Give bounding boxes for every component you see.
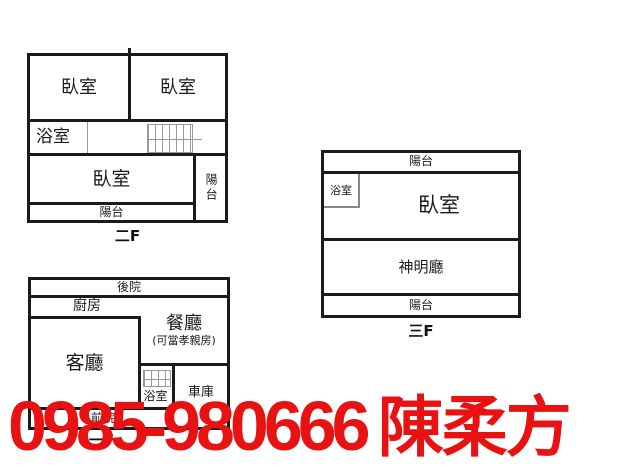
room-kitchen: 廚房 (55, 297, 119, 316)
floor2-plan: 臥室 臥室 浴室 臥室 陽台 陽台 (27, 53, 228, 223)
stairs-midline (143, 379, 171, 380)
agent-name: 陳柔方 (378, 390, 570, 464)
room-backyard: 後院 (31, 280, 227, 295)
dining-room-note: (可當孝親房) (152, 335, 216, 347)
room-shrine-hall: 神明廳 (324, 241, 518, 293)
room-balcony: 陽台 (324, 153, 518, 171)
floor2-label: 二F (27, 225, 228, 246)
dining-room-title: 餐廳 (166, 314, 202, 334)
floor3-plan: 浴室 陽台 臥室 神明廳 陽台 (321, 150, 521, 318)
room-dining-room: 餐廳 (可當孝親房) (141, 298, 227, 363)
room-bedroom: 臥室 (131, 56, 225, 119)
room-balcony: 陽台 (196, 156, 225, 220)
stairs-icon (143, 370, 171, 387)
room-balcony: 陽台 (324, 296, 518, 315)
room-bathroom: 浴室 (324, 174, 360, 208)
room-bedroom: 臥室 (30, 56, 128, 119)
room-bedroom: 臥室 (30, 156, 193, 202)
phone-number: 0985-980666 (8, 387, 366, 465)
bathroom-partition-line (87, 122, 88, 153)
contact-overlay: 0985-980666陳柔方 (8, 391, 570, 461)
wall-tick (128, 48, 131, 56)
room-bathroom: 浴室 (33, 122, 73, 153)
room-balcony: 陽台 (30, 205, 193, 220)
floor3-label: 三F (321, 320, 521, 341)
room-bedroom: 臥室 (360, 174, 518, 238)
stairs-midline (147, 139, 202, 140)
stairs-icon (147, 124, 193, 153)
floorplan-image: 臥室 臥室 浴室 臥室 陽台 陽台 二F 浴室 陽台 臥室 神明廳 陽台 三F … (0, 0, 640, 473)
